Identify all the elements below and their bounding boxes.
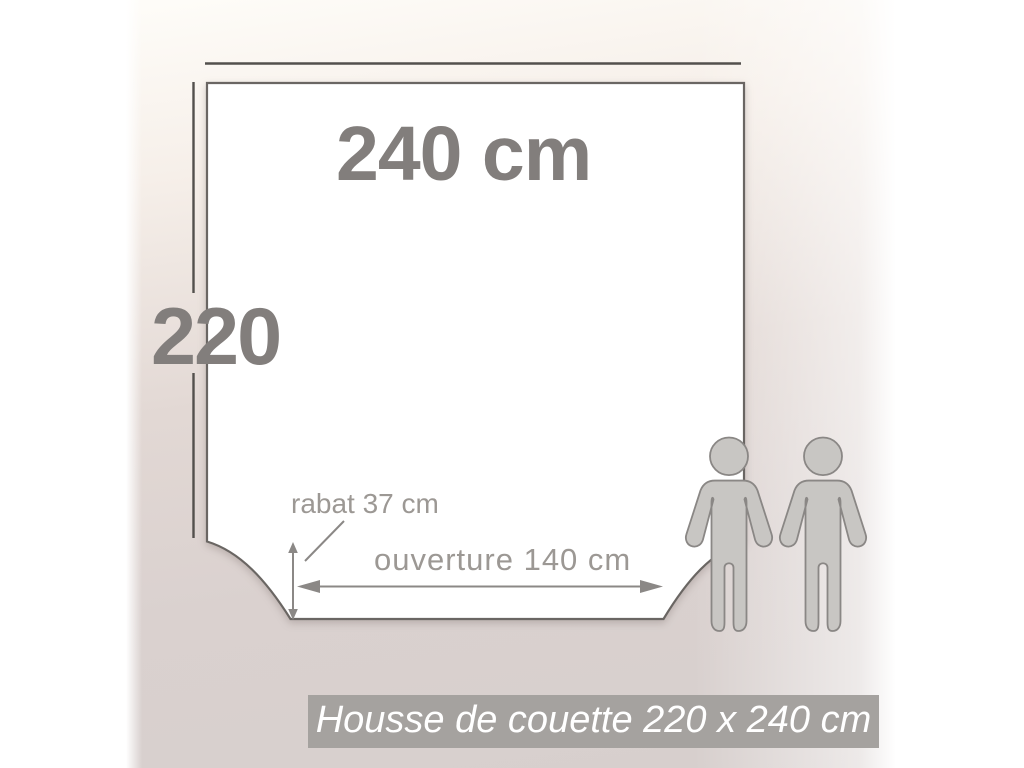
- opening-dimension-label: ouverture 140 cm: [374, 544, 631, 575]
- width-dimension-label: 240 cm: [336, 116, 591, 193]
- height-dimension-label: 220: [151, 297, 280, 378]
- flap-dimension-label: rabat 37 cm: [291, 490, 439, 518]
- caption-banner: Housse de couette 220 x 240 cm: [308, 695, 879, 748]
- caption-text: Housse de couette 220 x 240 cm: [316, 701, 872, 742]
- product-diagram: 240 cm 220 rabat 37 cm ouverture 140 cm …: [0, 0, 1024, 768]
- person-icon: [773, 436, 873, 634]
- person-icon: [679, 436, 779, 634]
